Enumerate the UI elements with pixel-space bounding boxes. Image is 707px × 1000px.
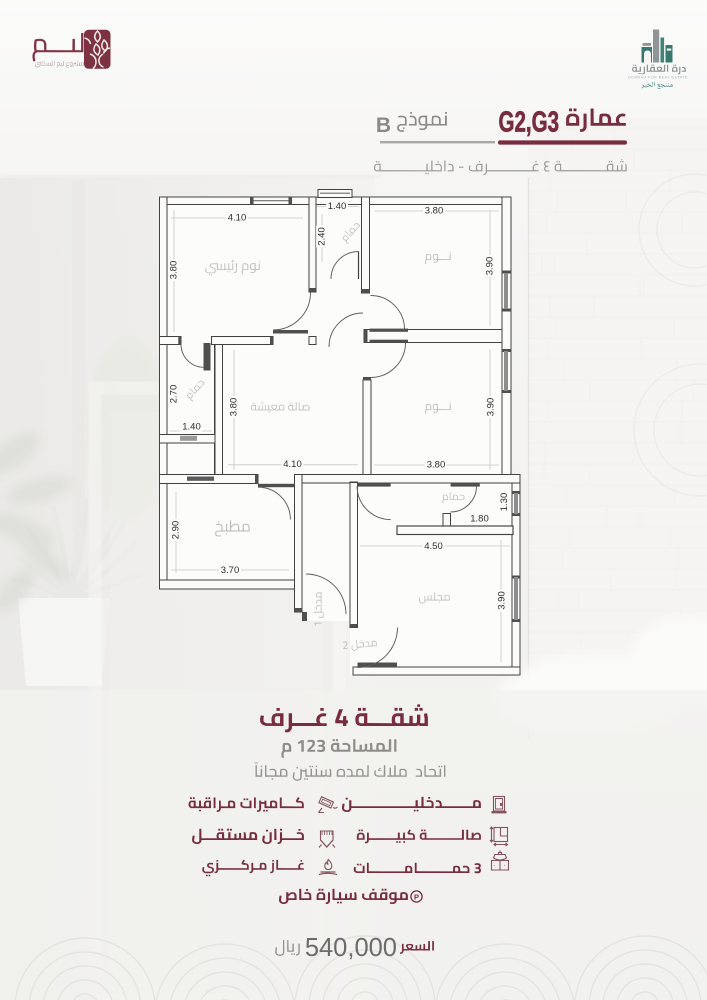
- svg-text:1.80: 1.80: [470, 514, 489, 525]
- svg-text:3.90: 3.90: [485, 257, 496, 276]
- svg-text:G2,G3: G2,G3: [499, 107, 559, 138]
- svg-text:3.80: 3.80: [169, 261, 180, 280]
- svg-text:DORRAH FOR REAL ESTATE: DORRAH FOR REAL ESTATE: [628, 76, 688, 80]
- svg-text:2.40: 2.40: [317, 227, 328, 246]
- svg-text:1.30: 1.30: [499, 493, 510, 512]
- svg-text:3.80: 3.80: [229, 398, 240, 417]
- svg-text:3.70: 3.70: [221, 565, 240, 576]
- svg-text:540,000: 540,000: [305, 934, 397, 962]
- svg-text:3.80: 3.80: [425, 206, 444, 217]
- svg-text:4.10: 4.10: [283, 459, 302, 470]
- svg-text:1.40: 1.40: [328, 201, 347, 212]
- svg-text:1.40: 1.40: [182, 422, 201, 433]
- svg-text:3.90: 3.90: [497, 591, 508, 610]
- svg-text:3.80: 3.80: [427, 460, 446, 471]
- svg-text:3.90: 3.90: [486, 398, 497, 417]
- svg-text:2.70: 2.70: [169, 385, 180, 404]
- svg-text:4.50: 4.50: [424, 541, 443, 552]
- svg-text:P: P: [414, 893, 419, 902]
- svg-text:2.90: 2.90: [171, 521, 182, 540]
- svg-text:4.10: 4.10: [228, 213, 247, 224]
- svg-text:B: B: [376, 114, 391, 137]
